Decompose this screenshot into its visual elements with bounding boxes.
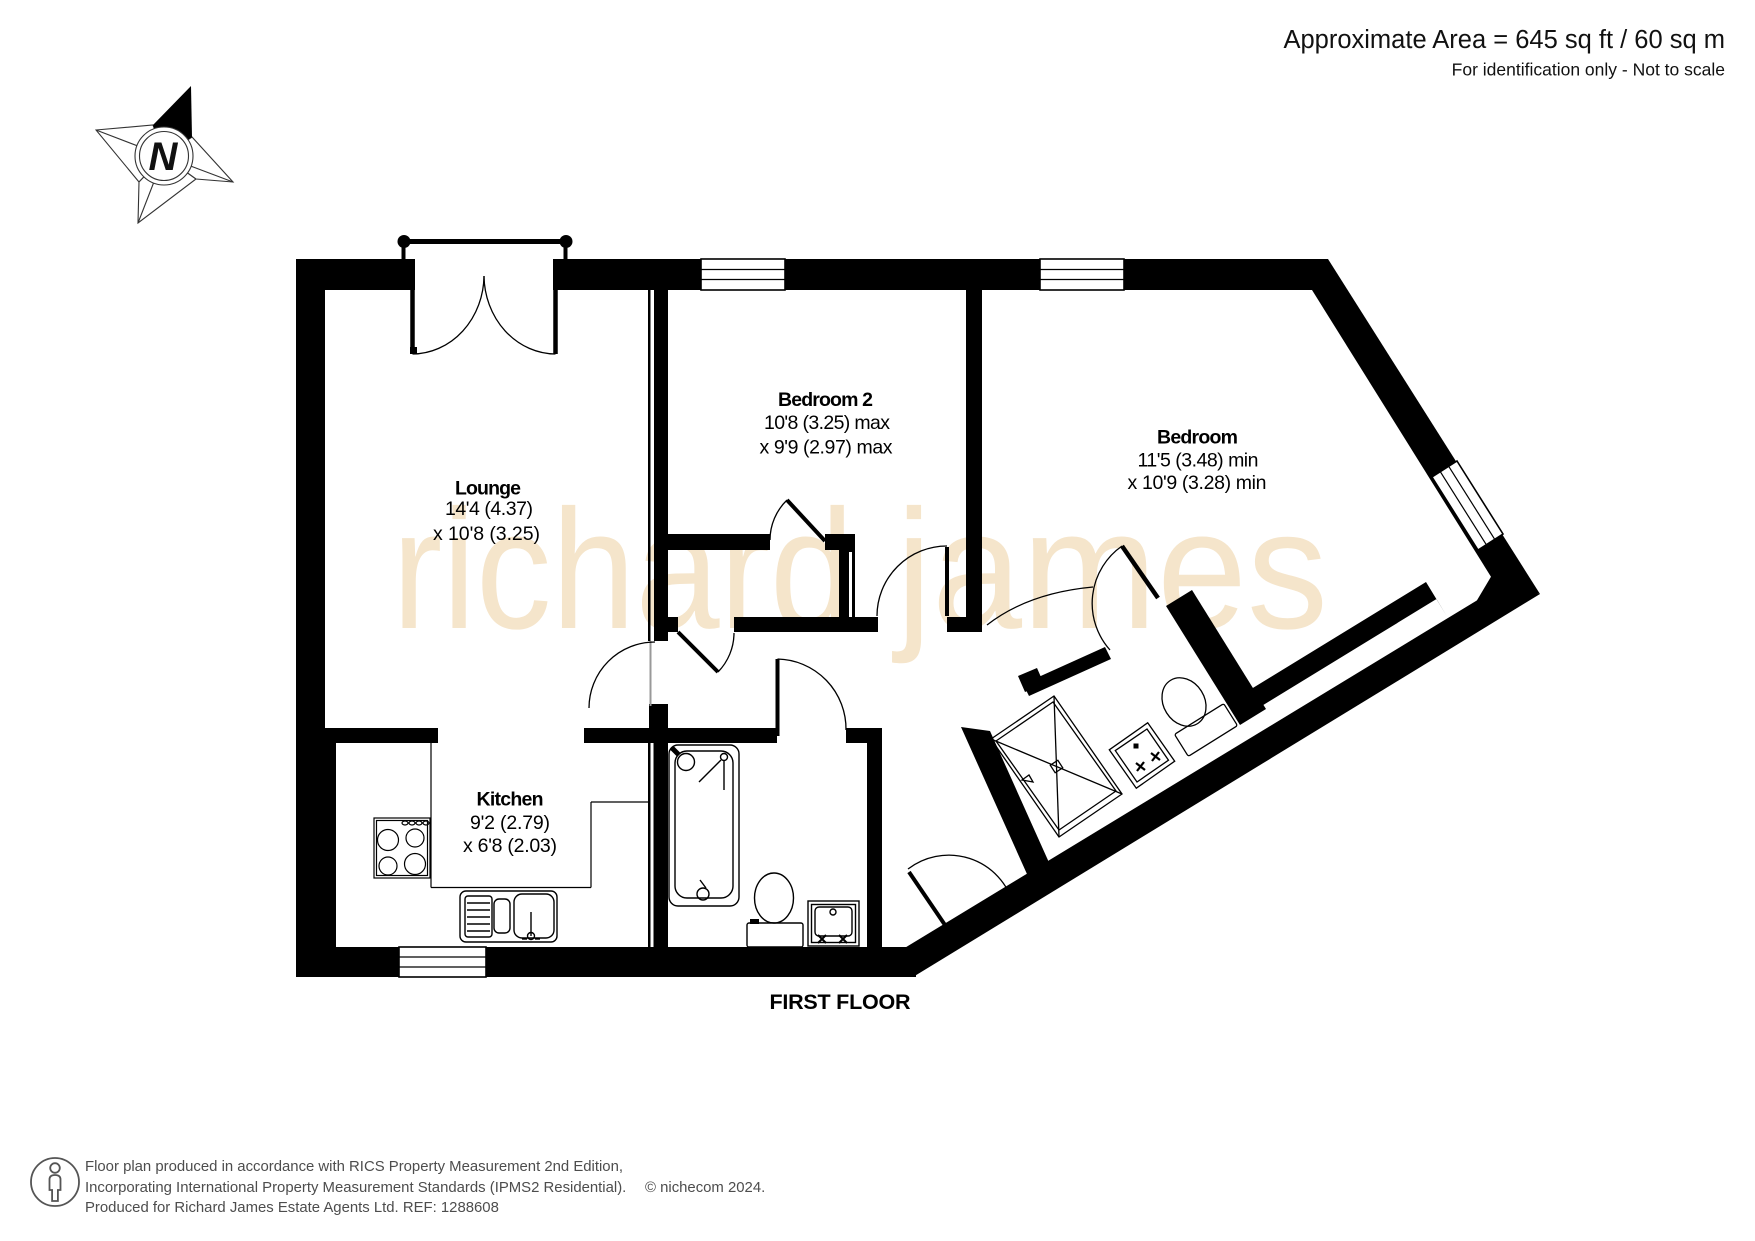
svg-text:Lounge: Lounge (455, 478, 521, 500)
svg-text:x 9'9 (2.97) max: x 9'9 (2.97) max (760, 437, 893, 459)
svg-text:x 6'8 (2.03): x 6'8 (2.03) (463, 835, 557, 857)
svg-text:N: N (149, 135, 179, 179)
svg-text:© nichecom 2024.: © nichecom 2024. (645, 1180, 765, 1196)
svg-text:10'8 (3.25) max: 10'8 (3.25) max (764, 412, 890, 434)
svg-text:Bedroom: Bedroom (1157, 427, 1238, 449)
svg-text:Approximate Area = 645 sq ft /: Approximate Area = 645 sq ft / 60 sq m (1283, 26, 1725, 54)
svg-text:14'4 (4.37): 14'4 (4.37) (445, 498, 533, 520)
svg-text:11'5 (3.48) min: 11'5 (3.48) min (1138, 449, 1259, 471)
svg-text:james: james (891, 475, 1328, 665)
svg-text:x 10'8 (3.25): x 10'8 (3.25) (433, 523, 540, 545)
svg-text:FIRST FLOOR: FIRST FLOOR (770, 990, 911, 1014)
svg-text:Incorporating International Pr: Incorporating International Property Mea… (85, 1180, 626, 1196)
svg-text:Kitchen: Kitchen (477, 789, 544, 811)
svg-text:Floor plan produced in accorda: Floor plan produced in accordance with R… (85, 1159, 623, 1175)
svg-text:Bedroom 2: Bedroom 2 (778, 389, 873, 411)
svg-text:x 10'9 (3.28) min: x 10'9 (3.28) min (1128, 472, 1267, 494)
svg-text:9'2 (2.79): 9'2 (2.79) (470, 812, 550, 834)
svg-text:Produced for Richard James Est: Produced for Richard James Estate Agents… (85, 1200, 499, 1216)
svg-text:For identification only - Not: For identification only - Not to scale (1452, 60, 1725, 80)
